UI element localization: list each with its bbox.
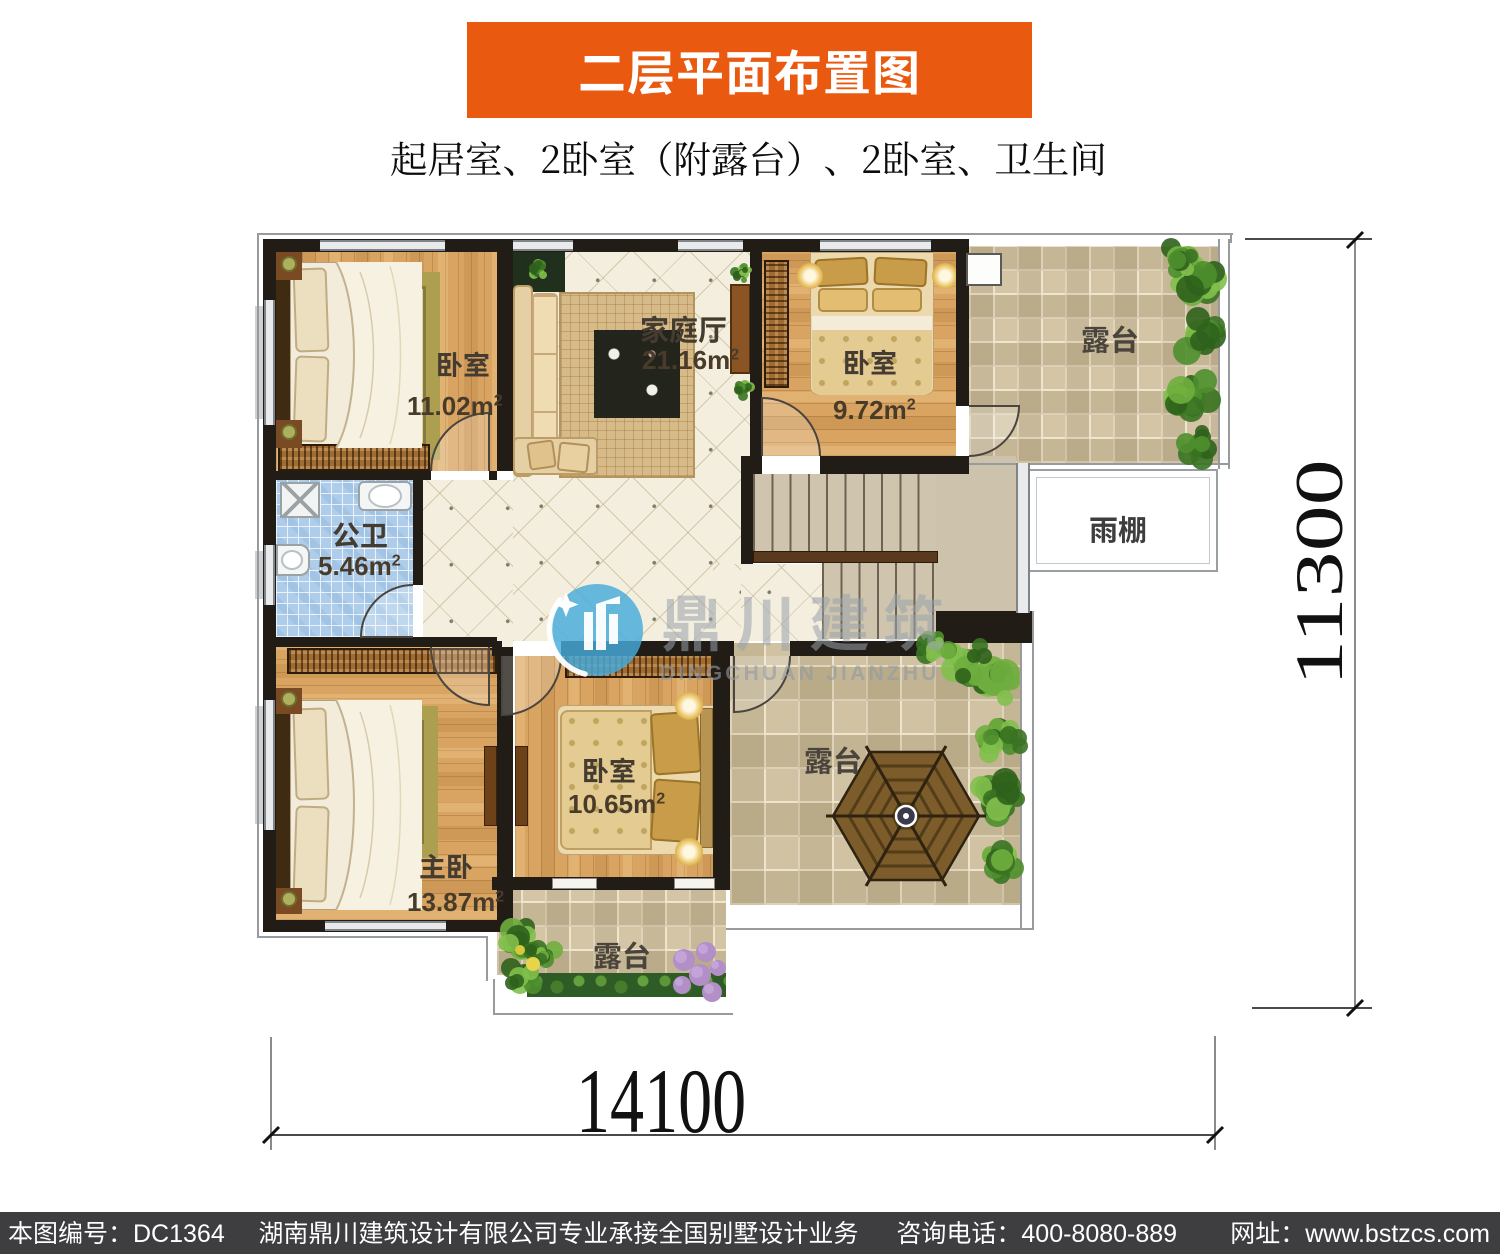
svg-text:DC1364: DC1364 [133, 1220, 225, 1248]
svg-text:www.bstzcs.com: www.bstzcs.com [1304, 1220, 1490, 1248]
svg-text:400-8080-889: 400-8080-889 [1021, 1220, 1177, 1248]
